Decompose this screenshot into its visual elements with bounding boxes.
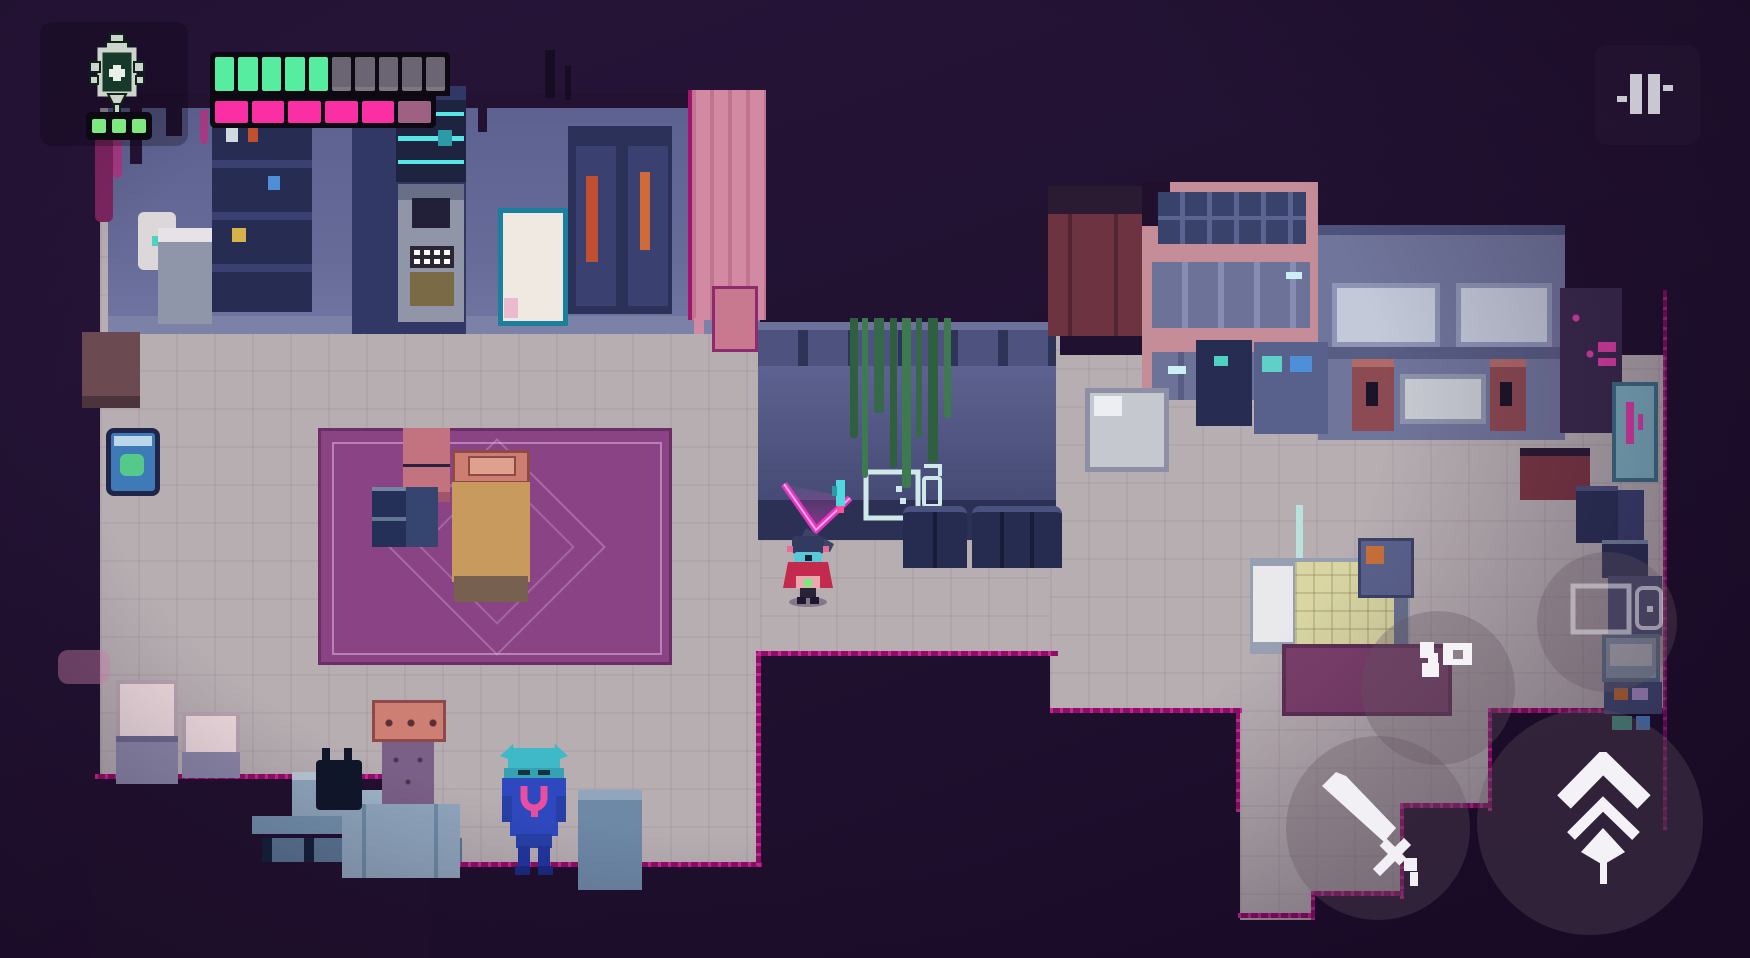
machine-chair-back <box>382 742 434 806</box>
vine <box>850 318 858 438</box>
bedside-machine-orange <box>1366 546 1384 564</box>
barrel-cluster <box>903 506 967 568</box>
shelf-item <box>226 128 238 142</box>
shelf-item <box>232 228 246 242</box>
companion-drone <box>832 480 850 514</box>
pistol-icon <box>1416 636 1476 682</box>
vine <box>862 318 868 478</box>
hanging-cloth <box>640 172 650 250</box>
item-lavender <box>1632 688 1648 700</box>
bed-pillow <box>468 456 516 476</box>
window-glint <box>1286 272 1302 279</box>
segment <box>215 57 234 91</box>
antenna-silhouette <box>565 66 571 100</box>
shelf-item <box>248 126 258 142</box>
pink-sign-bar <box>1598 342 1616 352</box>
segment <box>332 57 351 91</box>
pause-bar <box>1648 74 1660 114</box>
energy-segments <box>215 101 431 123</box>
vine <box>874 318 884 413</box>
pause-dash <box>1663 85 1673 91</box>
bin-teal <box>1262 356 1282 372</box>
segment <box>285 57 304 91</box>
pause-icon <box>1595 45 1700 145</box>
teal-cabinet <box>1612 382 1658 482</box>
segment <box>426 57 445 91</box>
small-robot-ear <box>344 748 352 762</box>
cushion-seat <box>116 680 178 740</box>
crate-stack <box>372 487 438 547</box>
storefront-table <box>1400 374 1486 424</box>
segment <box>402 57 421 91</box>
vine <box>928 318 938 463</box>
segment <box>379 57 398 91</box>
small-robot-silhouette <box>316 760 362 810</box>
pause-button[interactable] <box>1595 45 1700 145</box>
navy-crate <box>1618 490 1644 546</box>
machine-chair-cushion <box>372 700 446 742</box>
vending-screen <box>412 198 450 228</box>
segment <box>309 57 328 91</box>
vending-base <box>410 272 454 306</box>
barrel-cluster <box>972 506 1062 568</box>
segment <box>238 57 257 91</box>
window-sill-band <box>1318 347 1565 359</box>
drone-body <box>836 480 845 506</box>
pink-crate <box>712 286 758 352</box>
console-machine <box>1196 340 1252 426</box>
edge-trim <box>758 651 1058 656</box>
wall-shelf-cabinet <box>212 116 312 312</box>
hanging-vines <box>850 318 962 493</box>
navy-crate <box>1576 486 1618 543</box>
segment <box>132 119 146 133</box>
cushion-seat <box>182 712 240 756</box>
cot-pillow <box>1094 396 1122 416</box>
hospital-bed-pillow <box>1253 566 1293 642</box>
segment <box>215 101 248 123</box>
npc-blue-villager <box>494 742 574 876</box>
vine <box>916 318 922 438</box>
magenta-drip <box>200 110 208 144</box>
bed-mattress <box>452 482 530 582</box>
cushion-seat-base <box>116 736 178 784</box>
game-viewport <box>0 0 1750 958</box>
medkit-doses-bar <box>86 112 152 140</box>
edge-trim <box>756 651 761 866</box>
player-drifter <box>776 524 840 608</box>
maroon-machine <box>1048 186 1142 336</box>
drone-light <box>837 506 844 513</box>
pause-bar <box>1630 74 1642 114</box>
bin-blue <box>1290 356 1312 372</box>
ceiling-spike <box>478 98 487 132</box>
storefront-slot <box>1500 382 1512 406</box>
pause-dash <box>1617 96 1627 102</box>
aquarium-creature <box>120 454 144 476</box>
cushion-seat-base <box>182 752 240 778</box>
window-glint <box>1168 366 1186 374</box>
antenna-silhouette <box>545 50 555 98</box>
health-bar <box>210 52 450 96</box>
energy-bar <box>210 96 436 128</box>
iv-pole <box>1296 505 1303 563</box>
blue-building-window <box>1456 283 1552 347</box>
cyan-wire <box>398 160 464 164</box>
segment <box>355 57 374 91</box>
blue-building-window <box>1332 283 1440 347</box>
segment <box>112 119 126 133</box>
medkit-dose-pips <box>91 117 147 135</box>
vending-keypad <box>410 246 454 268</box>
shelf-item <box>268 176 280 190</box>
machine-chair-base <box>342 804 460 878</box>
cyan-node <box>438 130 452 146</box>
console-screen-dot <box>1214 356 1228 366</box>
teal-cabinet-graffiti <box>1638 414 1643 430</box>
holster-slots-icon <box>1568 578 1666 640</box>
edge-trim <box>1238 913 1314 918</box>
health-segments <box>215 57 445 91</box>
floor-stain <box>58 650 110 684</box>
segment <box>325 101 358 123</box>
pink-building-top-windows <box>1158 192 1306 244</box>
drone-fin <box>832 486 837 496</box>
aquarium-water-highlight <box>114 436 152 446</box>
bed-foot <box>454 576 528 602</box>
gray-machine <box>158 228 212 324</box>
syringe-medkit-icon <box>88 32 146 116</box>
vine <box>944 318 951 418</box>
teal-cabinet-graffiti <box>1626 402 1634 444</box>
hanging-cloth <box>586 176 598 262</box>
cyan-wire <box>398 136 464 141</box>
vine <box>902 318 911 488</box>
machine-right-of-npc <box>578 790 642 890</box>
wooden-stool <box>82 332 140 408</box>
sword-icon <box>1312 768 1436 894</box>
curtain-drip <box>694 318 704 334</box>
pink-sign-bar <box>1598 358 1616 366</box>
segment <box>252 101 285 123</box>
whiteboard-smudge <box>504 298 518 318</box>
double-chevron-up-arrow-icon <box>1556 752 1651 887</box>
segment <box>398 101 431 123</box>
storefront-slot <box>1366 382 1378 406</box>
small-robot-ear <box>322 748 330 762</box>
edge-trim <box>1236 712 1240 812</box>
vine <box>890 318 897 468</box>
edge-trim <box>1050 708 1242 713</box>
segment <box>262 57 281 91</box>
segment <box>288 101 321 123</box>
segment <box>92 119 106 133</box>
segment <box>362 101 395 123</box>
